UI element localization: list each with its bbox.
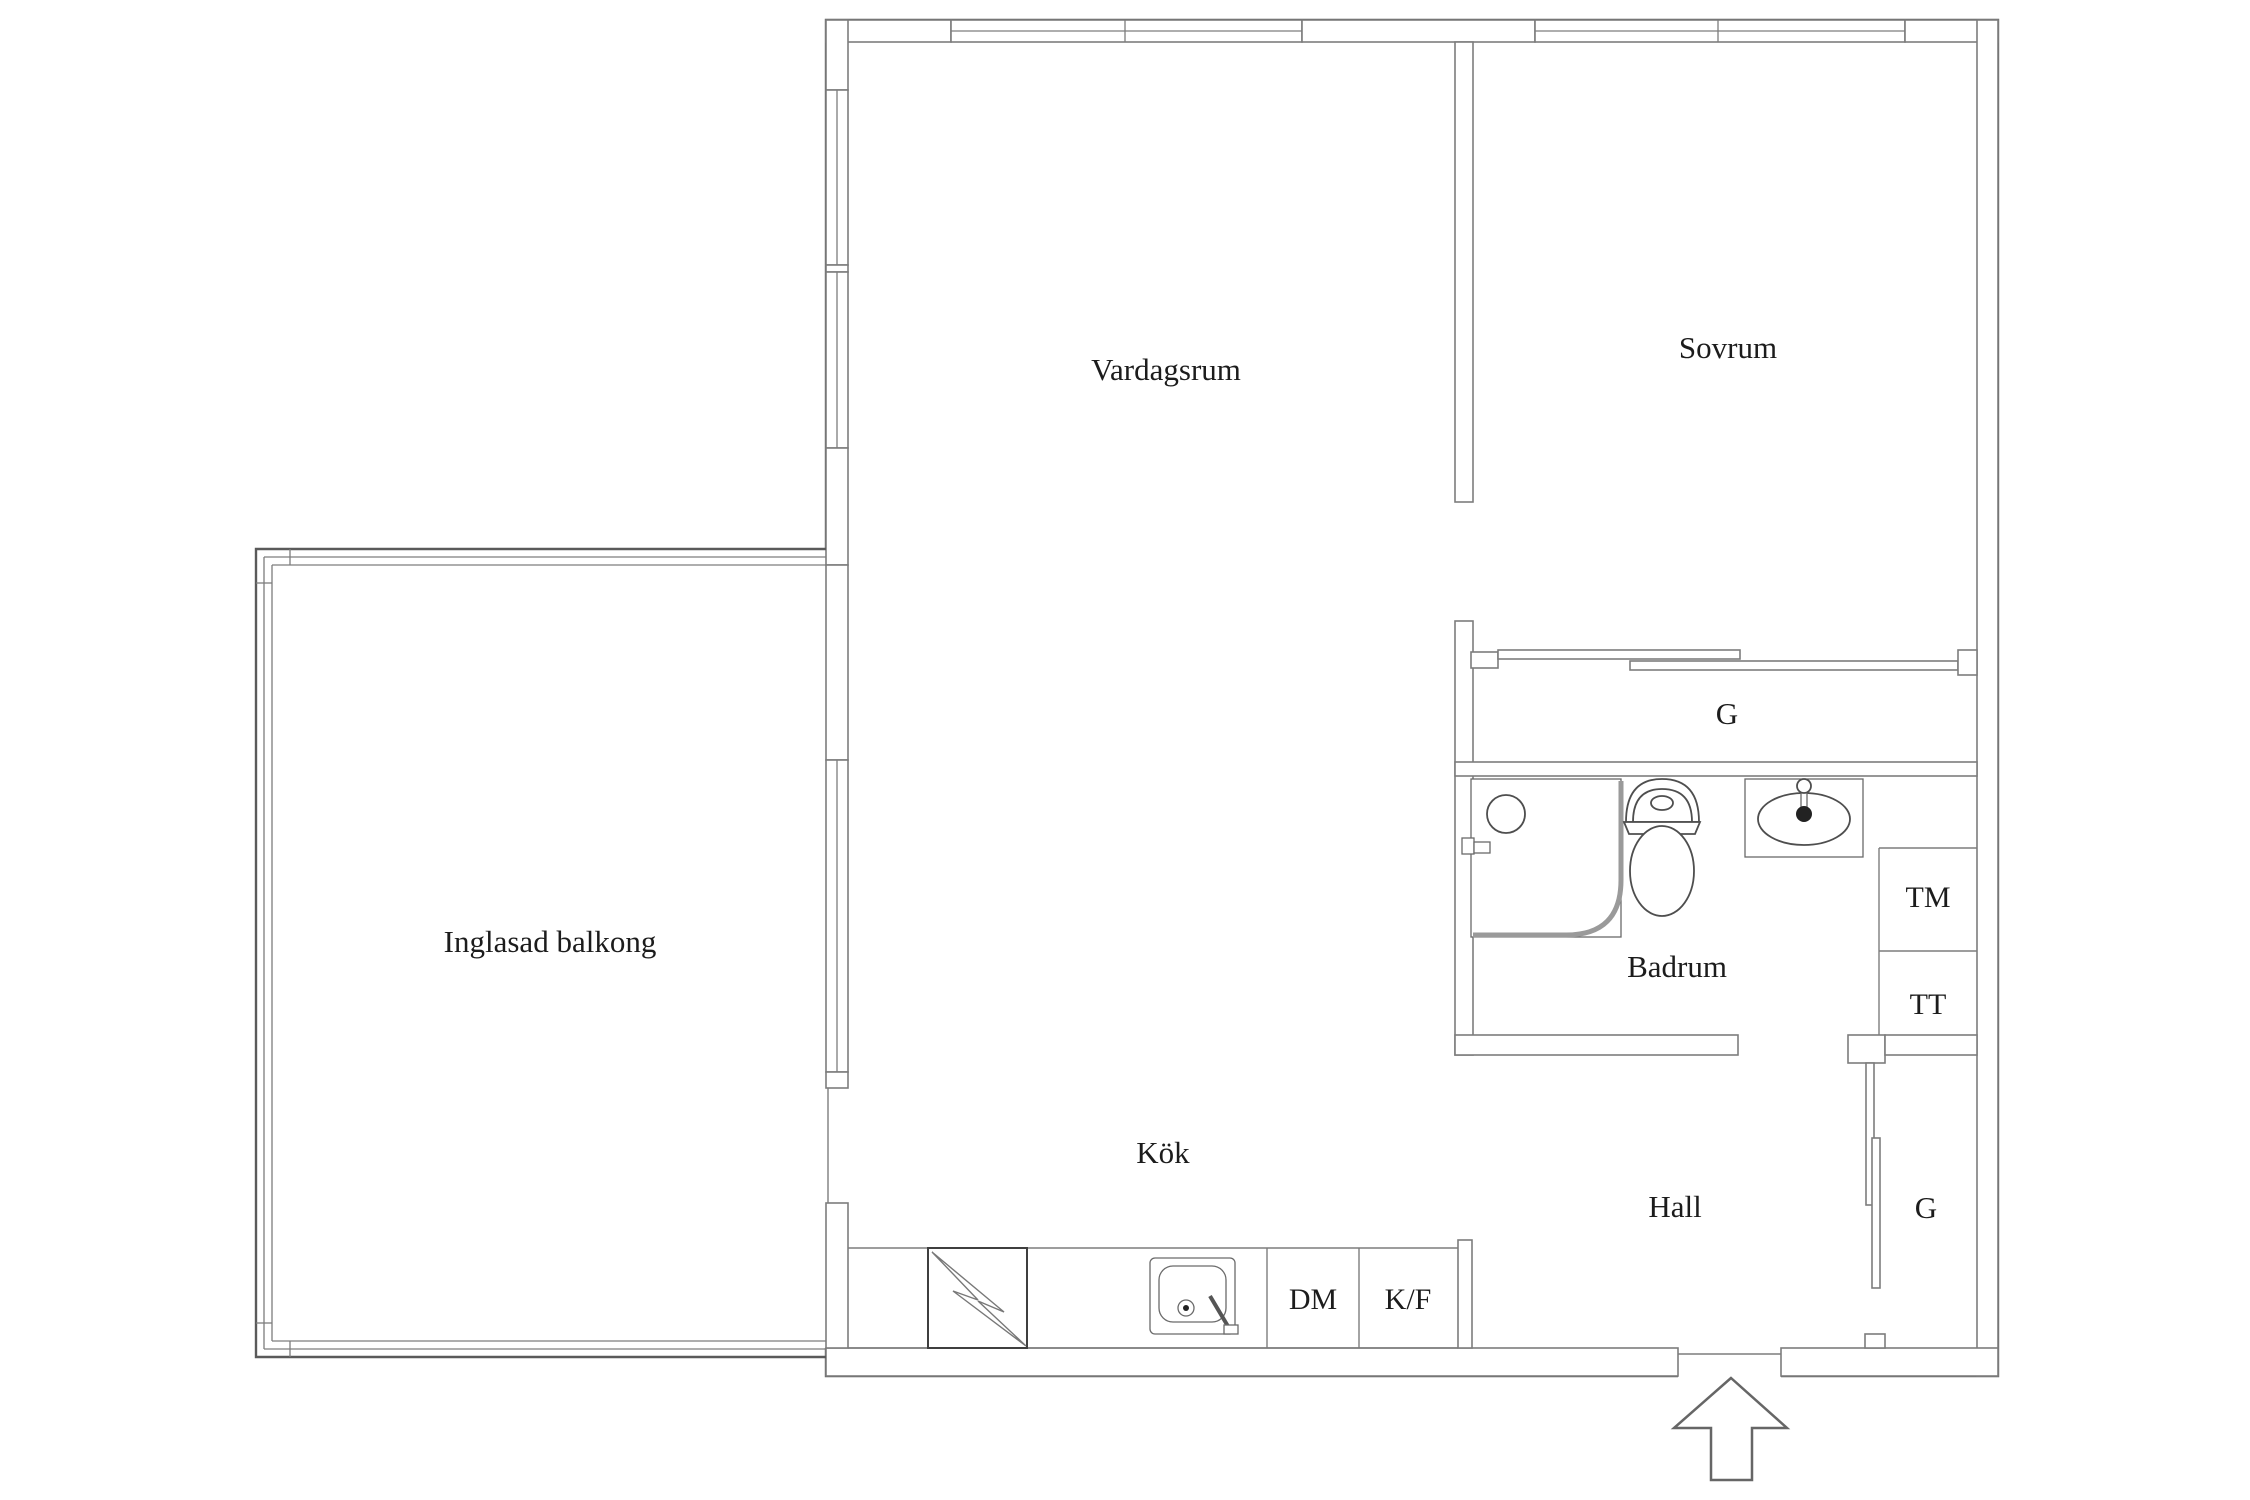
top-wall [826, 20, 1998, 42]
appliance-label-fridge-freezer: K/F [1385, 1283, 1432, 1316]
sliding-door-panel [1872, 1138, 1880, 1288]
room-label-kitchen: Kök [1136, 1135, 1190, 1170]
closet-label-hall: G [1915, 1190, 1937, 1225]
sliding-door-panel [1630, 661, 1958, 670]
toilet-icon [1624, 779, 1700, 916]
kitchen-hall-stub-wall [1458, 1240, 1472, 1348]
window-top-2 [1535, 20, 1905, 42]
closet-hall-front [1866, 1063, 1880, 1288]
closet-label-top: G [1716, 696, 1738, 731]
stove-lightning-icon [928, 1248, 1027, 1348]
window-left-1 [826, 90, 848, 265]
left-wall-upper [826, 20, 848, 565]
floorplan-canvas: Vardagsrum Sovrum Inglasad balkong Kök B… [0, 0, 2250, 1500]
bathroom-south-wall [1455, 1035, 1977, 1063]
floorplan-drawing: Vardagsrum Sovrum Inglasad balkong Kök B… [0, 0, 2250, 1500]
shower-icon [1462, 779, 1621, 937]
window-top-1 [951, 20, 1302, 42]
room-label-hall: Hall [1648, 1189, 1701, 1224]
room-label-living: Vardagsrum [1091, 352, 1241, 387]
door-jamb-notch [1865, 1334, 1885, 1348]
closet-bathroom-wall [1455, 762, 1977, 776]
appliance-label-washing-machine: TM [1906, 881, 1951, 914]
entrance-arrow-icon [1674, 1378, 1787, 1480]
right-wall [1977, 20, 1998, 1376]
window-kitchen [826, 760, 848, 1072]
window-left-2 [826, 272, 848, 448]
outer-perimeter [826, 20, 1998, 1376]
sliding-door-panel [1498, 650, 1740, 659]
room-label-bathroom: Badrum [1627, 949, 1727, 984]
room-label-bedroom: Sovrum [1679, 330, 1777, 365]
room-label-balcony: Inglasad balkong [444, 924, 657, 959]
living-bedroom-wall [1455, 42, 1473, 502]
closet-top-front [1471, 650, 1977, 675]
kitchen-counter [848, 1248, 1458, 1348]
washbasin-icon [1745, 779, 1863, 857]
left-wall-kitchen [826, 565, 848, 1348]
appliance-label-dishwasher: DM [1289, 1283, 1337, 1316]
kitchen-sink-icon [1150, 1258, 1238, 1334]
appliance-label-tumble-dryer: TT [1910, 988, 1947, 1021]
